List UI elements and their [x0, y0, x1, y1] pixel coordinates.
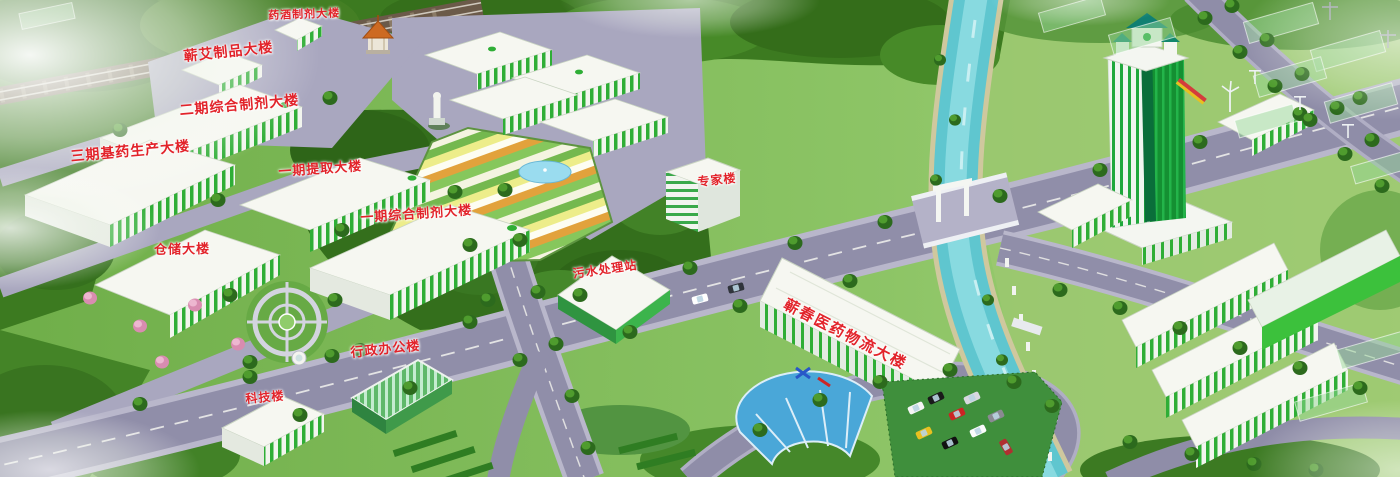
campus-aerial-rendering: 药酒制剂大楼 蕲艾制品大楼 二期综合制剂大楼 三期基药生产大楼 一期提取大楼 一…	[0, 0, 1400, 477]
label-liquor-prep-building: 药酒制剂大楼	[268, 7, 340, 21]
pond	[519, 161, 571, 183]
label-tech-building: 科技楼	[245, 390, 285, 405]
label-warehouse-building: 仓储大楼	[154, 243, 210, 257]
scene-canvas	[0, 0, 1400, 477]
gazebo-icon	[292, 351, 306, 365]
